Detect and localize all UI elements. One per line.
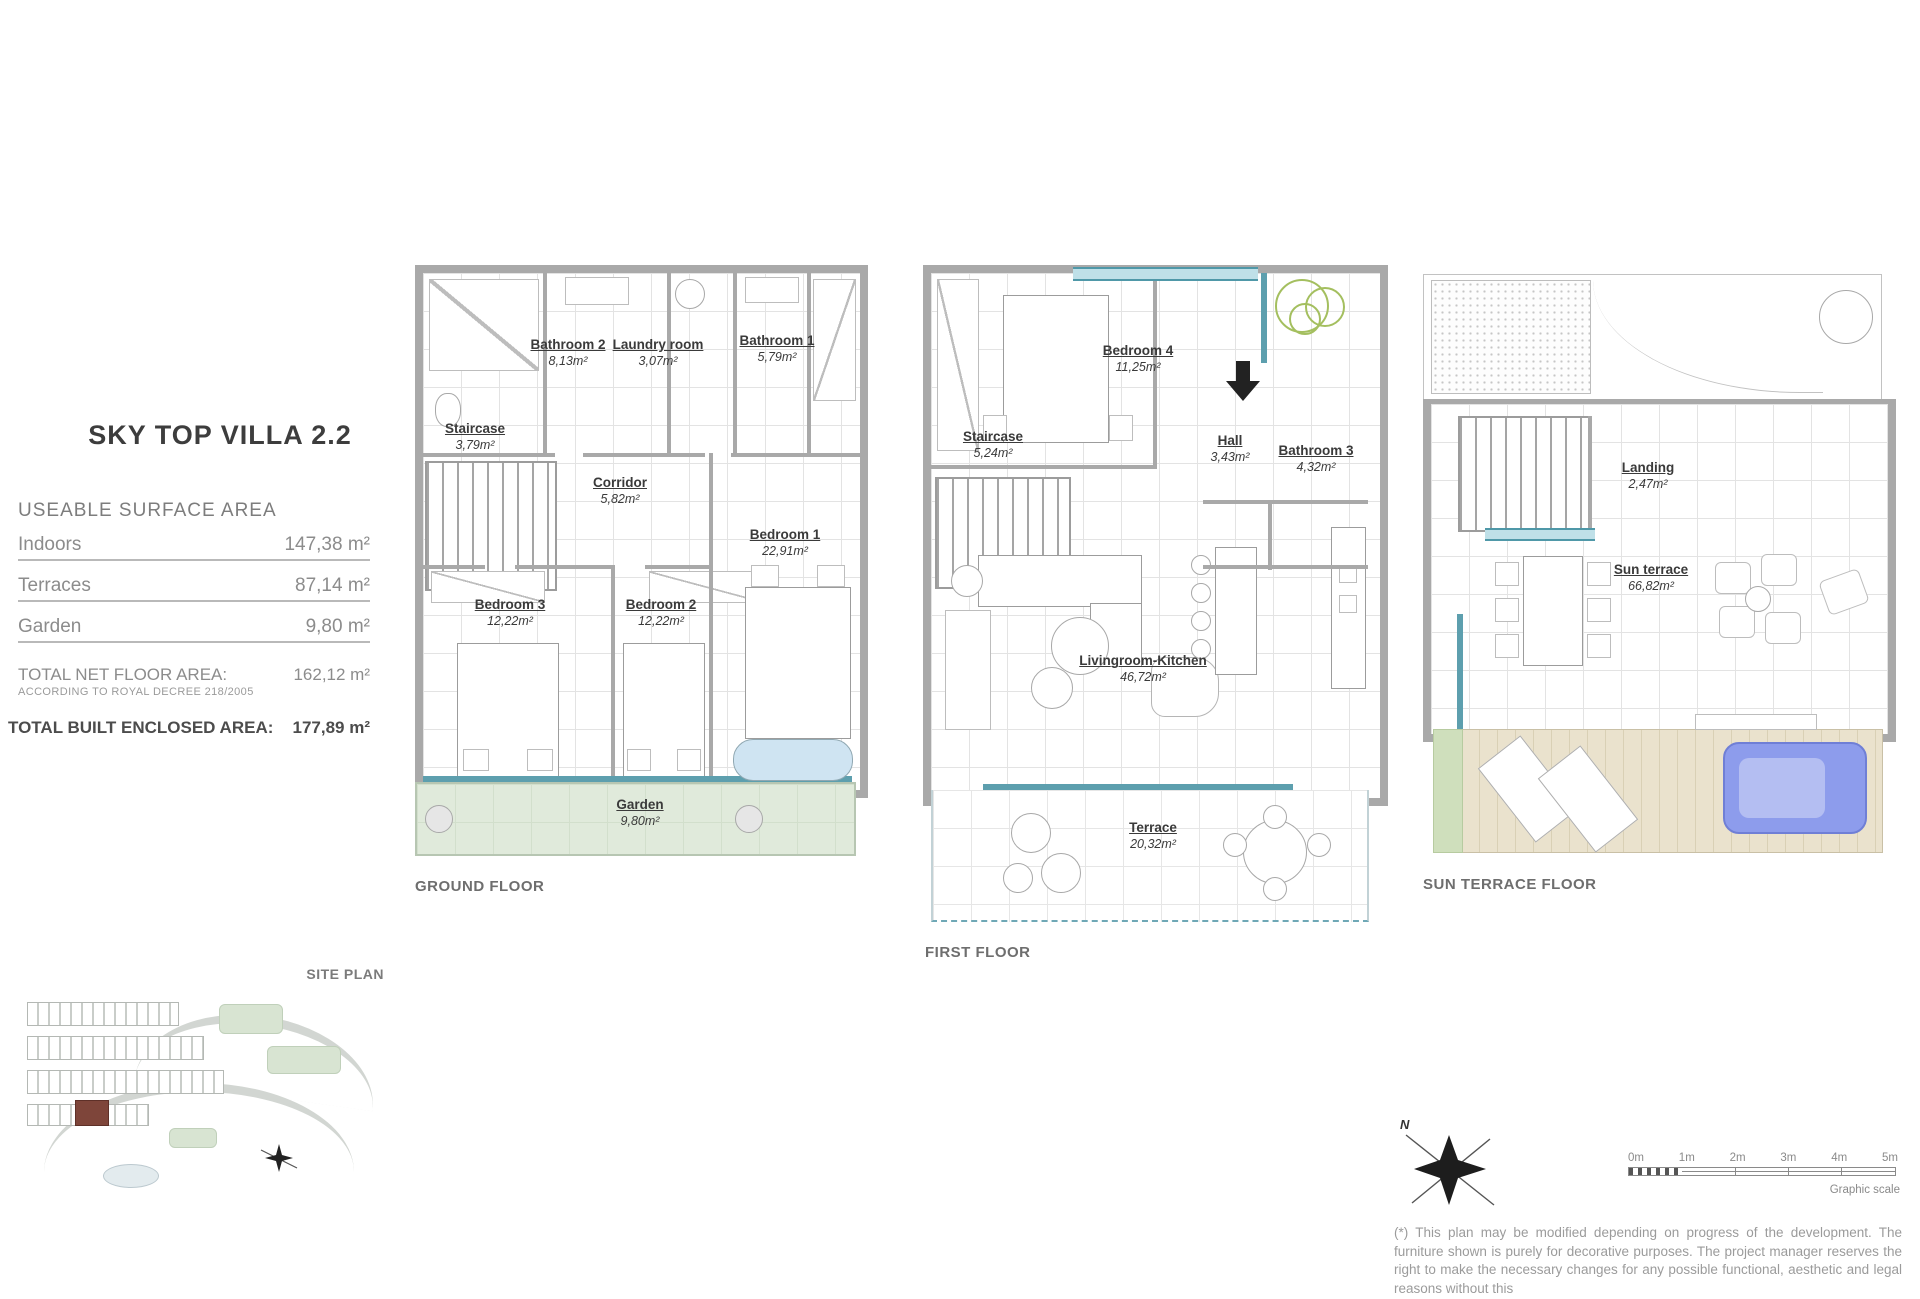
pillow (751, 565, 779, 587)
washing-machine (675, 279, 705, 309)
scale-tick: 1m (1679, 1152, 1695, 1164)
side-table (1745, 586, 1771, 612)
floor-plan-sheet: { "title": "SKY TOP VILLA 2.2", "summary… (0, 0, 1920, 1280)
window-band (1457, 614, 1463, 729)
total-net-value: 162,12 m² (293, 665, 370, 685)
site-pond (103, 1164, 159, 1188)
roof-hatch (1431, 280, 1591, 394)
summary-label: Indoors (18, 534, 81, 556)
total-built-label: TOTAL BUILT ENCLOSED AREA: (8, 718, 273, 738)
wardrobe (937, 279, 979, 451)
scale-bar-tickmark (1788, 1168, 1789, 1175)
wall (709, 453, 713, 782)
total-net-note: ACCORDING TO ROYAL DECREE 218/2005 (18, 686, 370, 698)
wall (423, 453, 555, 457)
pillow (463, 749, 489, 771)
wall (423, 565, 485, 569)
summary-value: 9,80 m² (306, 616, 370, 638)
outdoor-sofa (1723, 742, 1867, 834)
chair (1587, 634, 1611, 658)
chair (1263, 877, 1287, 901)
total-built-row: TOTAL BUILT ENCLOSED AREA: 177,89 m² (8, 718, 370, 738)
bathtub (733, 739, 853, 781)
summary-row-indoors: Indoors 147,38 m² (18, 520, 370, 561)
scale-caption: Graphic scale (1628, 1184, 1900, 1196)
page-title: SKY TOP VILLA 2.2 (40, 420, 400, 451)
roof-light (1819, 290, 1873, 344)
deck-bench (1695, 714, 1817, 730)
summary-label: Garden (18, 616, 81, 638)
first-floor-plan: Bedroom 4 11,25m² Staircase 5,24m² Hall … (923, 265, 1388, 932)
chair (1263, 805, 1287, 829)
armchair (1761, 554, 1797, 586)
wall (645, 565, 713, 569)
north-arrow: N (1394, 1117, 1504, 1222)
armchair (1765, 612, 1801, 644)
scale-tick: 4m (1831, 1152, 1847, 1164)
site-green (169, 1128, 217, 1148)
chair (1495, 598, 1519, 622)
room-label-bedroom2: Bedroom 2 12,22m² (613, 597, 709, 630)
ground-floor-plan: Bathroom 2 8,13m² Laundry room 3,07m² Ba… (415, 265, 876, 865)
sofa-cushion (1739, 758, 1825, 818)
wall (583, 453, 705, 457)
floor-name-ground: GROUND FLOOR (415, 878, 544, 895)
total-built-value: 177,89 m² (293, 718, 371, 738)
floor-name-sun-terrace: SUN TERRACE FLOOR (1423, 876, 1597, 893)
room-label-livingroom: Livingroom-Kitchen 46,72m² (1053, 653, 1233, 686)
wall (1203, 565, 1368, 569)
room-label-staircase: Staircase 3,79m² (427, 421, 523, 454)
site-green (219, 1004, 283, 1034)
chair (1587, 598, 1611, 622)
wall (931, 465, 1157, 469)
site-building-row (27, 1036, 204, 1060)
window-band (983, 784, 1293, 790)
wall (731, 453, 860, 457)
pillow (627, 749, 651, 771)
staircase-treads (1458, 416, 1592, 532)
chair (1495, 634, 1519, 658)
north-letter: N (1400, 1117, 1409, 1132)
tv-cabinet (945, 610, 991, 730)
pouf (1041, 853, 1081, 893)
pillow (1109, 415, 1133, 441)
outdoor-table (1523, 556, 1583, 666)
pillow (677, 749, 701, 771)
room-label-sun-terrace: Sun terrace 66,82m² (1591, 562, 1711, 595)
bed (745, 587, 851, 739)
terrace-table (1243, 820, 1307, 884)
scale-tick: 0m (1628, 1152, 1644, 1164)
wall (1203, 500, 1368, 504)
disclaimer-text: (*) This plan may be modified depending … (1394, 1224, 1902, 1299)
bathroom-sink (745, 277, 799, 303)
chair (1495, 562, 1519, 586)
scale-tick: 5m (1882, 1152, 1898, 1164)
room-label-laundry: Laundry room 3,07m² (603, 337, 713, 370)
summary-value: 147,38 m² (284, 534, 370, 556)
window-band (1073, 267, 1258, 281)
site-building-row (27, 1002, 179, 1026)
summary-label: Terraces (18, 575, 91, 597)
summary-heading: USEABLE SURFACE AREA (18, 500, 398, 522)
room-label-terrace: Terrace 20,32m² (1083, 820, 1223, 853)
total-net-label: TOTAL NET FLOOR AREA: (18, 665, 227, 685)
chair (1223, 833, 1247, 857)
sun-terrace-plan: Landing 2,47m² Sun terrace 66,82m² (1423, 274, 1900, 864)
stool (1191, 611, 1211, 631)
wall (515, 565, 615, 569)
window-band (1261, 273, 1267, 363)
summary-row-terraces: Terraces 87,14 m² (18, 561, 370, 602)
highlighted-unit (75, 1100, 109, 1126)
pillow (527, 749, 553, 771)
plant-icon (1289, 303, 1321, 335)
site-plan-label: SITE PLAN (19, 966, 384, 982)
floor-name-first: FIRST FLOOR (925, 944, 1031, 961)
scale-bar-dashes (1629, 1168, 1682, 1175)
room-label-landing: Landing 2,47m² (1593, 460, 1703, 493)
pouf (1003, 863, 1033, 893)
chair (1307, 833, 1331, 857)
site-compass-icon (257, 1136, 301, 1180)
room-label-bathroom1: Bathroom 1 5,79m² (727, 333, 827, 366)
armchair (1719, 606, 1755, 638)
room-label-bedroom3: Bedroom 3 12,22m² (450, 597, 570, 630)
scale-bar-tickmark (1841, 1168, 1842, 1175)
summary-value: 87,14 m² (295, 575, 370, 597)
scale-ticks: 0m 1m 2m 3m 4m 5m (1628, 1152, 1898, 1164)
room-label-bedroom1: Bedroom 1 22,91m² (715, 527, 855, 560)
room-label-staircase: Staircase 5,24m² (943, 429, 1043, 462)
site-plan-map (19, 988, 384, 1200)
north-arrow-icon (1394, 1117, 1504, 1222)
site-green (267, 1046, 341, 1074)
pouf (1011, 813, 1051, 853)
sink (1339, 595, 1357, 613)
total-net-row: TOTAL NET FLOOR AREA: 162,12 m² (18, 665, 370, 685)
dining-table (978, 555, 1142, 607)
room-label-garden: Garden 9,80m² (565, 797, 715, 830)
summary-row-garden: Garden 9,80 m² (18, 602, 370, 643)
scale-tick: 2m (1730, 1152, 1746, 1164)
scale-bar (1628, 1167, 1896, 1176)
wall (1268, 500, 1272, 570)
scale-tick: 3m (1780, 1152, 1796, 1164)
site-building-row (27, 1070, 224, 1094)
room-label-bedroom4: Bedroom 4 11,25m² (1073, 343, 1203, 376)
room-label-corridor: Corridor 5,82m² (565, 475, 675, 508)
bathroom-sink (565, 277, 629, 305)
pillow (817, 565, 845, 587)
room-label-bathroom3: Bathroom 3 4,32m² (1261, 443, 1371, 476)
armchair (1715, 562, 1751, 594)
scale-bar-tickmark (1735, 1168, 1736, 1175)
wall (1588, 416, 1592, 532)
window-band (1485, 528, 1595, 541)
garden-tree (425, 805, 453, 833)
garden-tree (735, 805, 763, 833)
graphic-scale: 0m 1m 2m 3m 4m 5m Graphic scale (1628, 1152, 1900, 1196)
planter-strip (1433, 729, 1463, 853)
chair (951, 565, 983, 597)
stool (1191, 583, 1211, 603)
entrance-arrow-icon (1223, 361, 1263, 407)
